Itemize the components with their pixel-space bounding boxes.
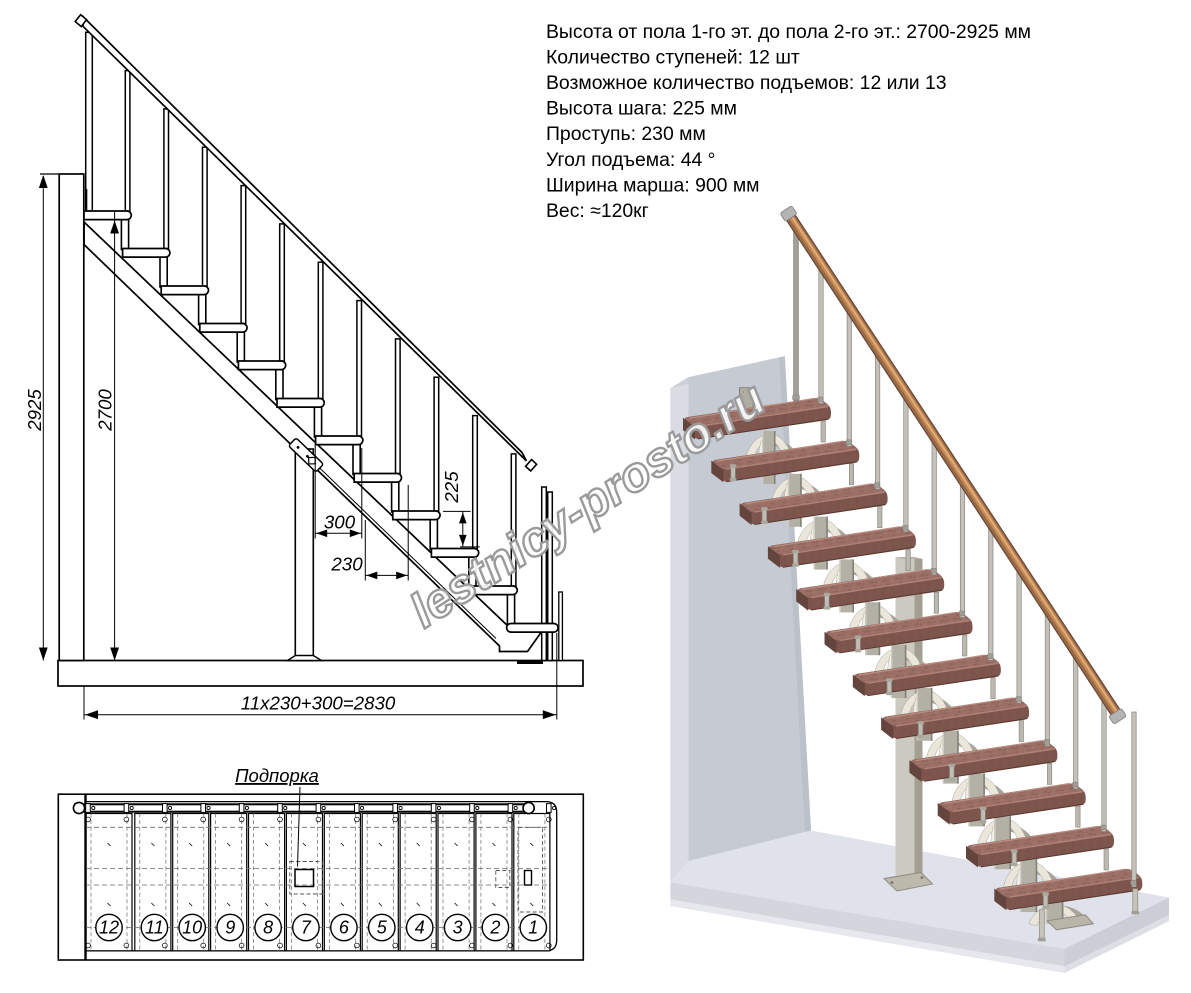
svg-text:4: 4 [415,918,425,938]
svg-text:Возможное количество подъемов:: Возможное количество подъемов: 12 или 13 [546,72,947,94]
svg-text:2: 2 [489,918,500,938]
svg-text:230: 230 [330,554,363,575]
svg-text:1: 1 [528,918,538,938]
svg-text:225: 225 [441,471,462,504]
svg-text:Количество ступеней: 12 шт: Количество ступеней: 12 шт [546,47,800,69]
svg-text:11x230+300=2830: 11x230+300=2830 [241,693,396,714]
svg-text:Подпорка: Подпорка [235,765,319,786]
svg-text:7: 7 [301,918,312,938]
svg-text:3: 3 [453,918,463,938]
svg-text:12: 12 [99,918,119,938]
svg-text:Вес: ≈120кг: Вес: ≈120кг [546,200,649,222]
svg-text:300: 300 [324,512,356,533]
svg-text:11: 11 [145,918,164,938]
svg-text:6: 6 [339,918,350,938]
svg-text:Высота шага: 225 мм: Высота шага: 225 мм [546,98,737,120]
svg-text:8: 8 [263,918,273,938]
svg-text:Угол подъема: 44 °: Угол подъема: 44 ° [546,149,715,171]
svg-text:Ширина марша: 900 мм: Ширина марша: 900 мм [546,174,760,196]
svg-text:2700: 2700 [95,389,116,432]
svg-text:Высота от пола 1-го эт. до пол: Высота от пола 1-го эт. до пола 2-го эт.… [546,21,1031,43]
svg-text:5: 5 [377,918,388,938]
svg-text:Проступь: 230 мм: Проступь: 230 мм [546,123,706,145]
svg-text:2925: 2925 [24,389,45,432]
svg-text:9: 9 [225,918,235,938]
svg-text:10: 10 [182,918,202,938]
